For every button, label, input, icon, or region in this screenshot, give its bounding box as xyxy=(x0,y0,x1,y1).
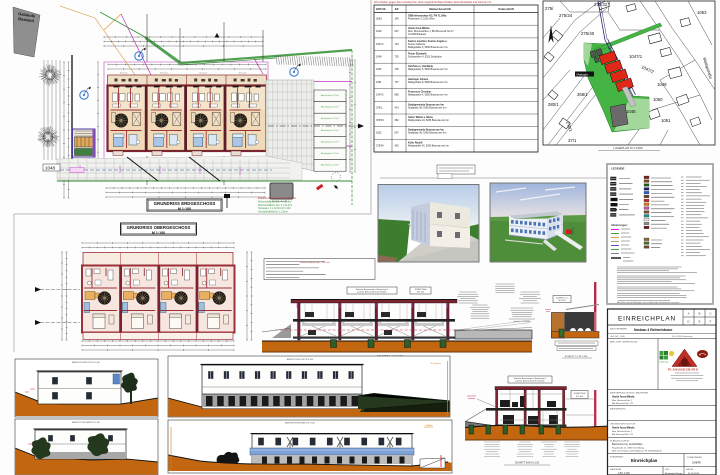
svg-text:275/34: 275/34 xyxy=(559,13,573,18)
svg-text:1/1/056 Bukarest: 1/1/056 Bukarest xyxy=(408,33,426,36)
svg-text:275/32: 275/32 xyxy=(594,2,608,7)
svg-text:Hauptstraße 11, 5280 Gimmelber: Hauptstraße 11, 5280 Gimmelberg xyxy=(612,446,645,449)
svg-text:BAUFÜHRUNG:: BAUFÜHRUNG: xyxy=(610,408,626,411)
svg-text:EZ: EZ xyxy=(395,7,399,11)
svg-text:1047/1: 1047/1 xyxy=(376,43,384,46)
svg-text:Mattigstraße 8, 5280 Braunau a: Mattigstraße 8, 5280 Braunau am Inn xyxy=(408,81,448,84)
svg-text:Vasile Anca-Mihela: Vasile Anca-Mihela xyxy=(612,427,635,430)
svg-text:425: 425 xyxy=(395,144,400,147)
svg-text:M 1:100: M 1:100 xyxy=(576,396,583,398)
svg-text:GRUNDEIGENTUM VON:: GRUNDEIGENTUM VON: xyxy=(610,424,636,426)
svg-text:DATUM: DATUM xyxy=(686,468,694,471)
svg-text:M 1:100: M 1:100 xyxy=(559,300,566,302)
svg-text:AMTLICHE VERMESSUNG:: AMTLICHE VERMESSUNG: xyxy=(610,341,638,344)
svg-text:positiver Befund durch den Sta: positiver Befund durch den Statiker xyxy=(357,291,387,294)
svg-text:382: 382 xyxy=(395,119,400,122)
svg-text:Mattigstr.: Mattigstr. xyxy=(577,73,589,77)
svg-text:Mattigstraße 5, 5280 Braunau a: Mattigstraße 5, 5280 Braunau am Inn xyxy=(408,68,448,71)
svg-text:LAGEPLAN M 1:1000: LAGEPLAN M 1:1000 xyxy=(613,146,643,150)
svg-text:1051: 1051 xyxy=(376,81,382,84)
svg-text:M 1:100: M 1:100 xyxy=(152,231,165,235)
svg-text:Mun. Bucuresti Sec. 1: Mun. Bucuresti Sec. 1 xyxy=(612,399,633,402)
svg-text:Terrasse: Terrasse xyxy=(239,72,248,75)
svg-text:Mattigstraße 4, 5280 Braunau a: Mattigstraße 4, 5280 Braunau am Inn xyxy=(408,94,448,97)
svg-text:PLANUNG DURCH:: PLANUNG DURCH: xyxy=(610,440,630,443)
svg-text:Abstellplatz 12,5m²: Abstellplatz 12,5m² xyxy=(321,106,339,109)
svg-text:Alle Maße sind vor Baubeginn v: Alle Maße sind vor Baubeginn vom ausführ… xyxy=(617,301,680,304)
svg-text:Wir erheben gegen das umseitig: Wir erheben gegen das umseitig bzw. oben… xyxy=(374,0,492,4)
svg-text:275/: 275/ xyxy=(545,6,554,11)
svg-text:1050: 1050 xyxy=(376,68,382,71)
svg-text:Abstellplatz 12,5m²: Abstellplatz 12,5m² xyxy=(321,164,339,167)
svg-text:275/40: 275/40 xyxy=(581,31,595,36)
svg-text:1047/1: 1047/1 xyxy=(629,54,643,59)
svg-text:C: C xyxy=(710,312,712,316)
svg-text:Vasile Anca-Mihela: Vasile Anca-Mihela xyxy=(612,396,635,399)
svg-text:375/33: 375/33 xyxy=(376,119,384,122)
svg-text:1049: 1049 xyxy=(657,82,667,87)
svg-text:1050: 1050 xyxy=(653,97,663,102)
svg-text:Name/ Anschrift: Name/ Anschrift xyxy=(429,7,450,11)
svg-text:Abstellplatz 12,5m²: Abstellplatz 12,5m² xyxy=(321,129,339,132)
svg-text:268/1: 268/1 xyxy=(376,18,383,21)
svg-text:3CAD plan: 3CAD plan xyxy=(659,361,669,364)
svg-text:268/1: 268/1 xyxy=(577,92,588,97)
svg-text:GEZ.:: GEZ.: xyxy=(665,469,671,471)
svg-text:280/1: 280/1 xyxy=(548,102,559,107)
svg-text:Abstellplatz 12,5m²: Abstellplatz 12,5m² xyxy=(321,152,339,155)
svg-text:734: 734 xyxy=(395,43,400,46)
svg-text:PLANINHALT:: PLANINHALT: xyxy=(610,456,624,459)
svg-text:1053: 1053 xyxy=(697,10,707,15)
svg-text:ANSICHT NORD-WEST M 1:100: ANSICHT NORD-WEST M 1:100 xyxy=(285,422,315,425)
svg-text:736: 736 xyxy=(395,68,400,71)
svg-text:Terrasse: Terrasse xyxy=(120,72,129,75)
svg-text:Neubau 4 Reihenhäuser: Neubau 4 Reihenhäuser xyxy=(634,328,673,332)
svg-text:GRUNDRISS ERDGESCHOSS: GRUNDRISS ERDGESCHOSS xyxy=(154,201,216,206)
svg-text:SCHNITT A-A: SCHNITT A-A xyxy=(415,288,427,291)
svg-text:M 1:100: M 1:100 xyxy=(178,207,191,211)
svg-text:858: 858 xyxy=(395,94,400,97)
svg-text:SCHNITT B-B M 1:100: SCHNITT B-B M 1:100 xyxy=(515,462,540,465)
svg-text:145: 145 xyxy=(395,18,400,21)
svg-text:375/40: 375/40 xyxy=(376,144,384,147)
svg-text:Stadtplatz 38, 5280 Braunau am: Stadtplatz 38, 5280 Braunau am Inn xyxy=(408,106,447,109)
svg-text:SCHNITT C-C: SCHNITT C-C xyxy=(556,298,569,300)
svg-text:Mail: einreichplan.mueller@gmx: Mail: einreichplan.mueller@gmx.at Tel: 0… xyxy=(612,450,662,453)
svg-text:OK Gelände: OK Gelände xyxy=(430,363,442,365)
svg-text:Abstellplatz 12,5m²: Abstellplatz 12,5m² xyxy=(321,117,339,120)
svg-text:MASSSTAB: MASSSTAB xyxy=(610,468,622,471)
svg-text:Bauzentner Ing. Gerald Müller: Bauzentner Ing. Gerald Müller xyxy=(612,443,643,446)
svg-text:Grundstücksfläche: 1.212m²: Grundstücksfläche: 1.212m² xyxy=(258,211,288,214)
svg-text:ANSICHT SÜD-OST M 1:100: ANSICHT SÜD-OST M 1:100 xyxy=(287,358,314,361)
svg-text:E: E xyxy=(699,320,701,324)
svg-text:Mattigstraße 42, 5280 Braunau: Mattigstraße 42, 5280 Braunau am Inn xyxy=(408,144,450,147)
svg-text:Statische Bemessung u. Bewehru: Statische Bemessung u. Bewehrung It. xyxy=(514,377,547,380)
svg-text:Unterschrift: Unterschrift xyxy=(498,7,514,11)
svg-text:Wohnnutzfläche ges.: 431,2m²: Wohnnutzfläche ges.: 431,2m² xyxy=(300,261,330,264)
svg-text:B: B xyxy=(699,312,701,316)
svg-text:Abstellplatz 12,5m²: Abstellplatz 12,5m² xyxy=(321,94,339,97)
svg-text:Praterstern 3, 1020 Wien: Praterstern 3, 1020 Wien xyxy=(408,18,435,21)
svg-text:Mun. Bucuresti Sec. 1: Mun. Bucuresti Sec. 1 xyxy=(612,430,633,433)
svg-text:Mattigstraße 3, 5280 Braunau a: Mattigstraße 3, 5280 Braunau am Inn xyxy=(408,46,448,49)
svg-text:Abstellplatz 12,5m²: Abstellplatz 12,5m² xyxy=(321,140,339,143)
svg-text:ANSICHT NORD-OST M 1:100: ANSICHT NORD-OST M 1:100 xyxy=(72,361,101,364)
svg-text:PLANUNGSBÜRO: PLANUNGSBÜRO xyxy=(668,367,699,372)
svg-text:EINREICHPLAN: EINREICHPLAN xyxy=(618,316,676,323)
svg-text:ANSICHT SÜD-WEST M 1:100: ANSICHT SÜD-WEST M 1:100 xyxy=(72,421,101,424)
svg-text:1046: 1046 xyxy=(376,30,382,33)
svg-text:37/1: 37/1 xyxy=(568,138,577,143)
svg-text:007: 007 xyxy=(395,132,400,135)
svg-text:1048/PE: 1048/PE xyxy=(692,463,701,465)
svg-text:Abkürzungen:: Abkürzungen: xyxy=(611,224,628,227)
svg-text:1048: 1048 xyxy=(626,109,636,114)
svg-text:BAUVORHABEN:: BAUVORHABEN: xyxy=(610,328,628,331)
svg-text:OK Attika: OK Attika xyxy=(425,424,433,427)
svg-text:Terrasse: Terrasse xyxy=(199,72,208,75)
svg-text:Terrasse: Terrasse xyxy=(160,72,169,75)
svg-text:1049: 1049 xyxy=(376,56,382,59)
svg-text:1048: 1048 xyxy=(45,166,56,171)
svg-text:LEGENDE: LEGENDE xyxy=(611,167,625,171)
svg-text:GRUNDRISS OBERGESCHOSS: GRUNDRISS OBERGESCHOSS xyxy=(127,225,191,230)
svg-text:M 1:100: M 1:100 xyxy=(417,292,424,294)
svg-text:Schlossallee 4, 5223 Schalchen: Schlossallee 4, 5223 Schalchen xyxy=(408,56,443,59)
svg-text:379/1,: 379/1, xyxy=(376,106,383,109)
svg-text:1047/2: 1047/2 xyxy=(376,94,384,97)
svg-text:A: A xyxy=(688,312,690,316)
svg-text:Bld. Bucuresti Noi. 171: Bld. Bucuresti Noi. 171 xyxy=(612,433,634,436)
svg-text:Statische Bemessung u. Bewehru: Statische Bemessung u. Bewehrung It. xyxy=(356,288,389,291)
svg-text:Bld. Bucuresti Noi. 171: Bld. Bucuresti Noi. 171 xyxy=(612,402,634,405)
svg-text:PLANNUMMER: PLANNUMMER xyxy=(687,456,702,459)
svg-text:GST.-NR.: 1048: GST.-NR.: 1048 xyxy=(610,336,626,338)
svg-text:Mattigstraße 43, 5280 Braunau: Mattigstraße 43, 5280 Braunau am Inn xyxy=(408,119,450,122)
svg-text:1051: 1051 xyxy=(661,118,671,123)
svg-text:Stadtplatz 38, 5280 Braunau am: Stadtplatz 38, 5280 Braunau am Inn xyxy=(408,132,447,135)
svg-text:BAUFÜHRUNG DURCH / BAUHERRN:: BAUFÜHRUNG DURCH / BAUHERRN: xyxy=(610,392,649,395)
svg-text:Einreichplan: Einreichplan xyxy=(631,458,658,463)
svg-text:SCHNITT B-B: SCHNITT B-B xyxy=(574,393,587,395)
svg-text:GST-Nr.: GST-Nr. xyxy=(376,7,387,11)
svg-text:007: 007 xyxy=(395,30,400,33)
svg-text:1052: 1052 xyxy=(376,132,382,135)
svg-text:D: D xyxy=(688,320,690,324)
svg-text:414: 414 xyxy=(395,106,400,109)
svg-text:735: 735 xyxy=(395,56,400,59)
svg-text:positiver Befund durch den Sta: positiver Befund durch den Statiker xyxy=(515,380,545,383)
svg-text:KG: 40113 Gatterberg: KG: 40113 Gatterberg xyxy=(672,335,693,338)
svg-text:SCHNITT C-C M 1:100: SCHNITT C-C M 1:100 xyxy=(565,356,588,358)
svg-text:737: 737 xyxy=(395,81,400,84)
